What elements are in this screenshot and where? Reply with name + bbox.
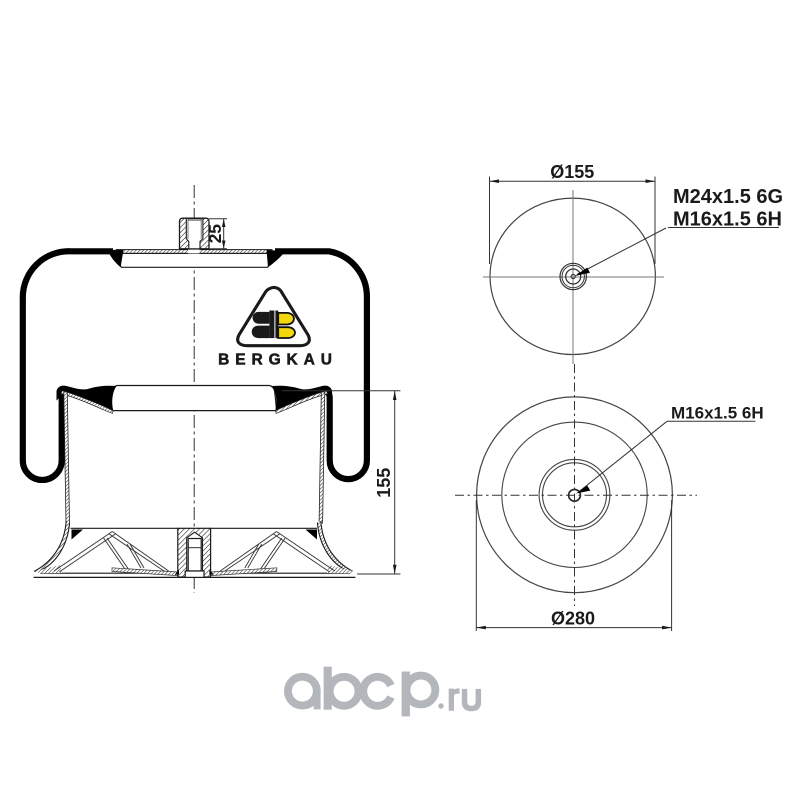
- svg-text:25: 25: [205, 224, 225, 244]
- svg-text:M16x1.5 6H: M16x1.5 6H: [671, 404, 764, 423]
- svg-text:M24x1.5 6G: M24x1.5 6G: [673, 186, 783, 208]
- svg-text:Ø155: Ø155: [550, 162, 594, 182]
- svg-text:BERGKAU: BERGKAU: [218, 351, 338, 368]
- svg-text:Ø280: Ø280: [551, 609, 595, 629]
- svg-text:155: 155: [374, 468, 394, 498]
